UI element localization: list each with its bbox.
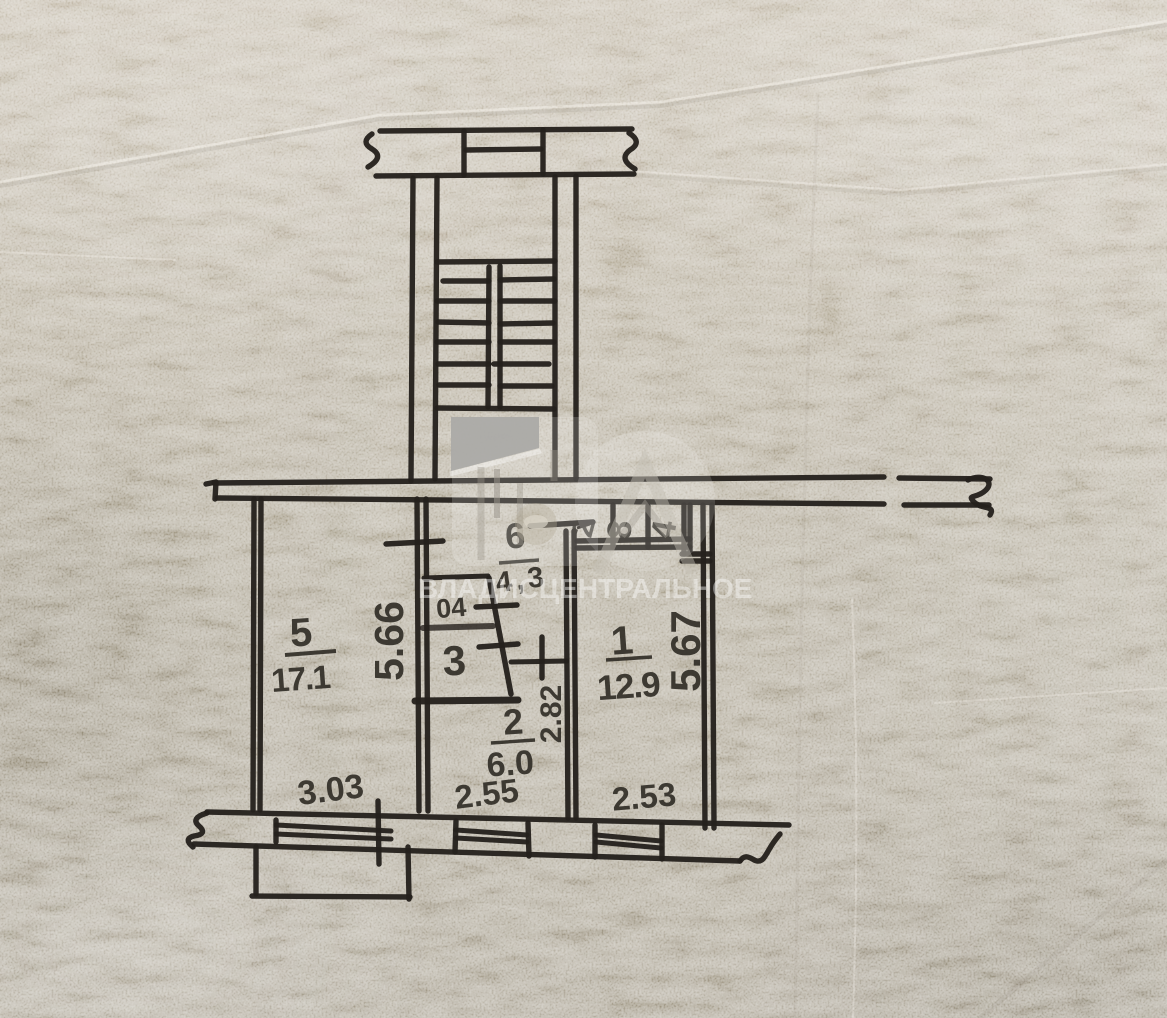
svg-text:3: 3 bbox=[441, 636, 467, 684]
svg-text:17.1: 17.1 bbox=[270, 658, 332, 699]
svg-text:2.53: 2.53 bbox=[610, 775, 677, 817]
svg-text:5.67: 5.67 bbox=[662, 610, 709, 692]
svg-text:3.03: 3.03 bbox=[295, 767, 365, 813]
svg-text:2.82: 2.82 bbox=[535, 685, 568, 743]
svg-text:12.9: 12.9 bbox=[596, 665, 662, 708]
svg-text:5.66: 5.66 bbox=[366, 601, 412, 681]
svg-text:ВЛАДИСЦЕНТРАЛЬНОЕ: ВЛАДИСЦЕНТРАЛЬНОЕ bbox=[418, 573, 752, 604]
svg-text:2: 2 bbox=[502, 700, 525, 742]
svg-text:5: 5 bbox=[288, 610, 313, 655]
svg-text:2.55: 2.55 bbox=[452, 771, 520, 816]
